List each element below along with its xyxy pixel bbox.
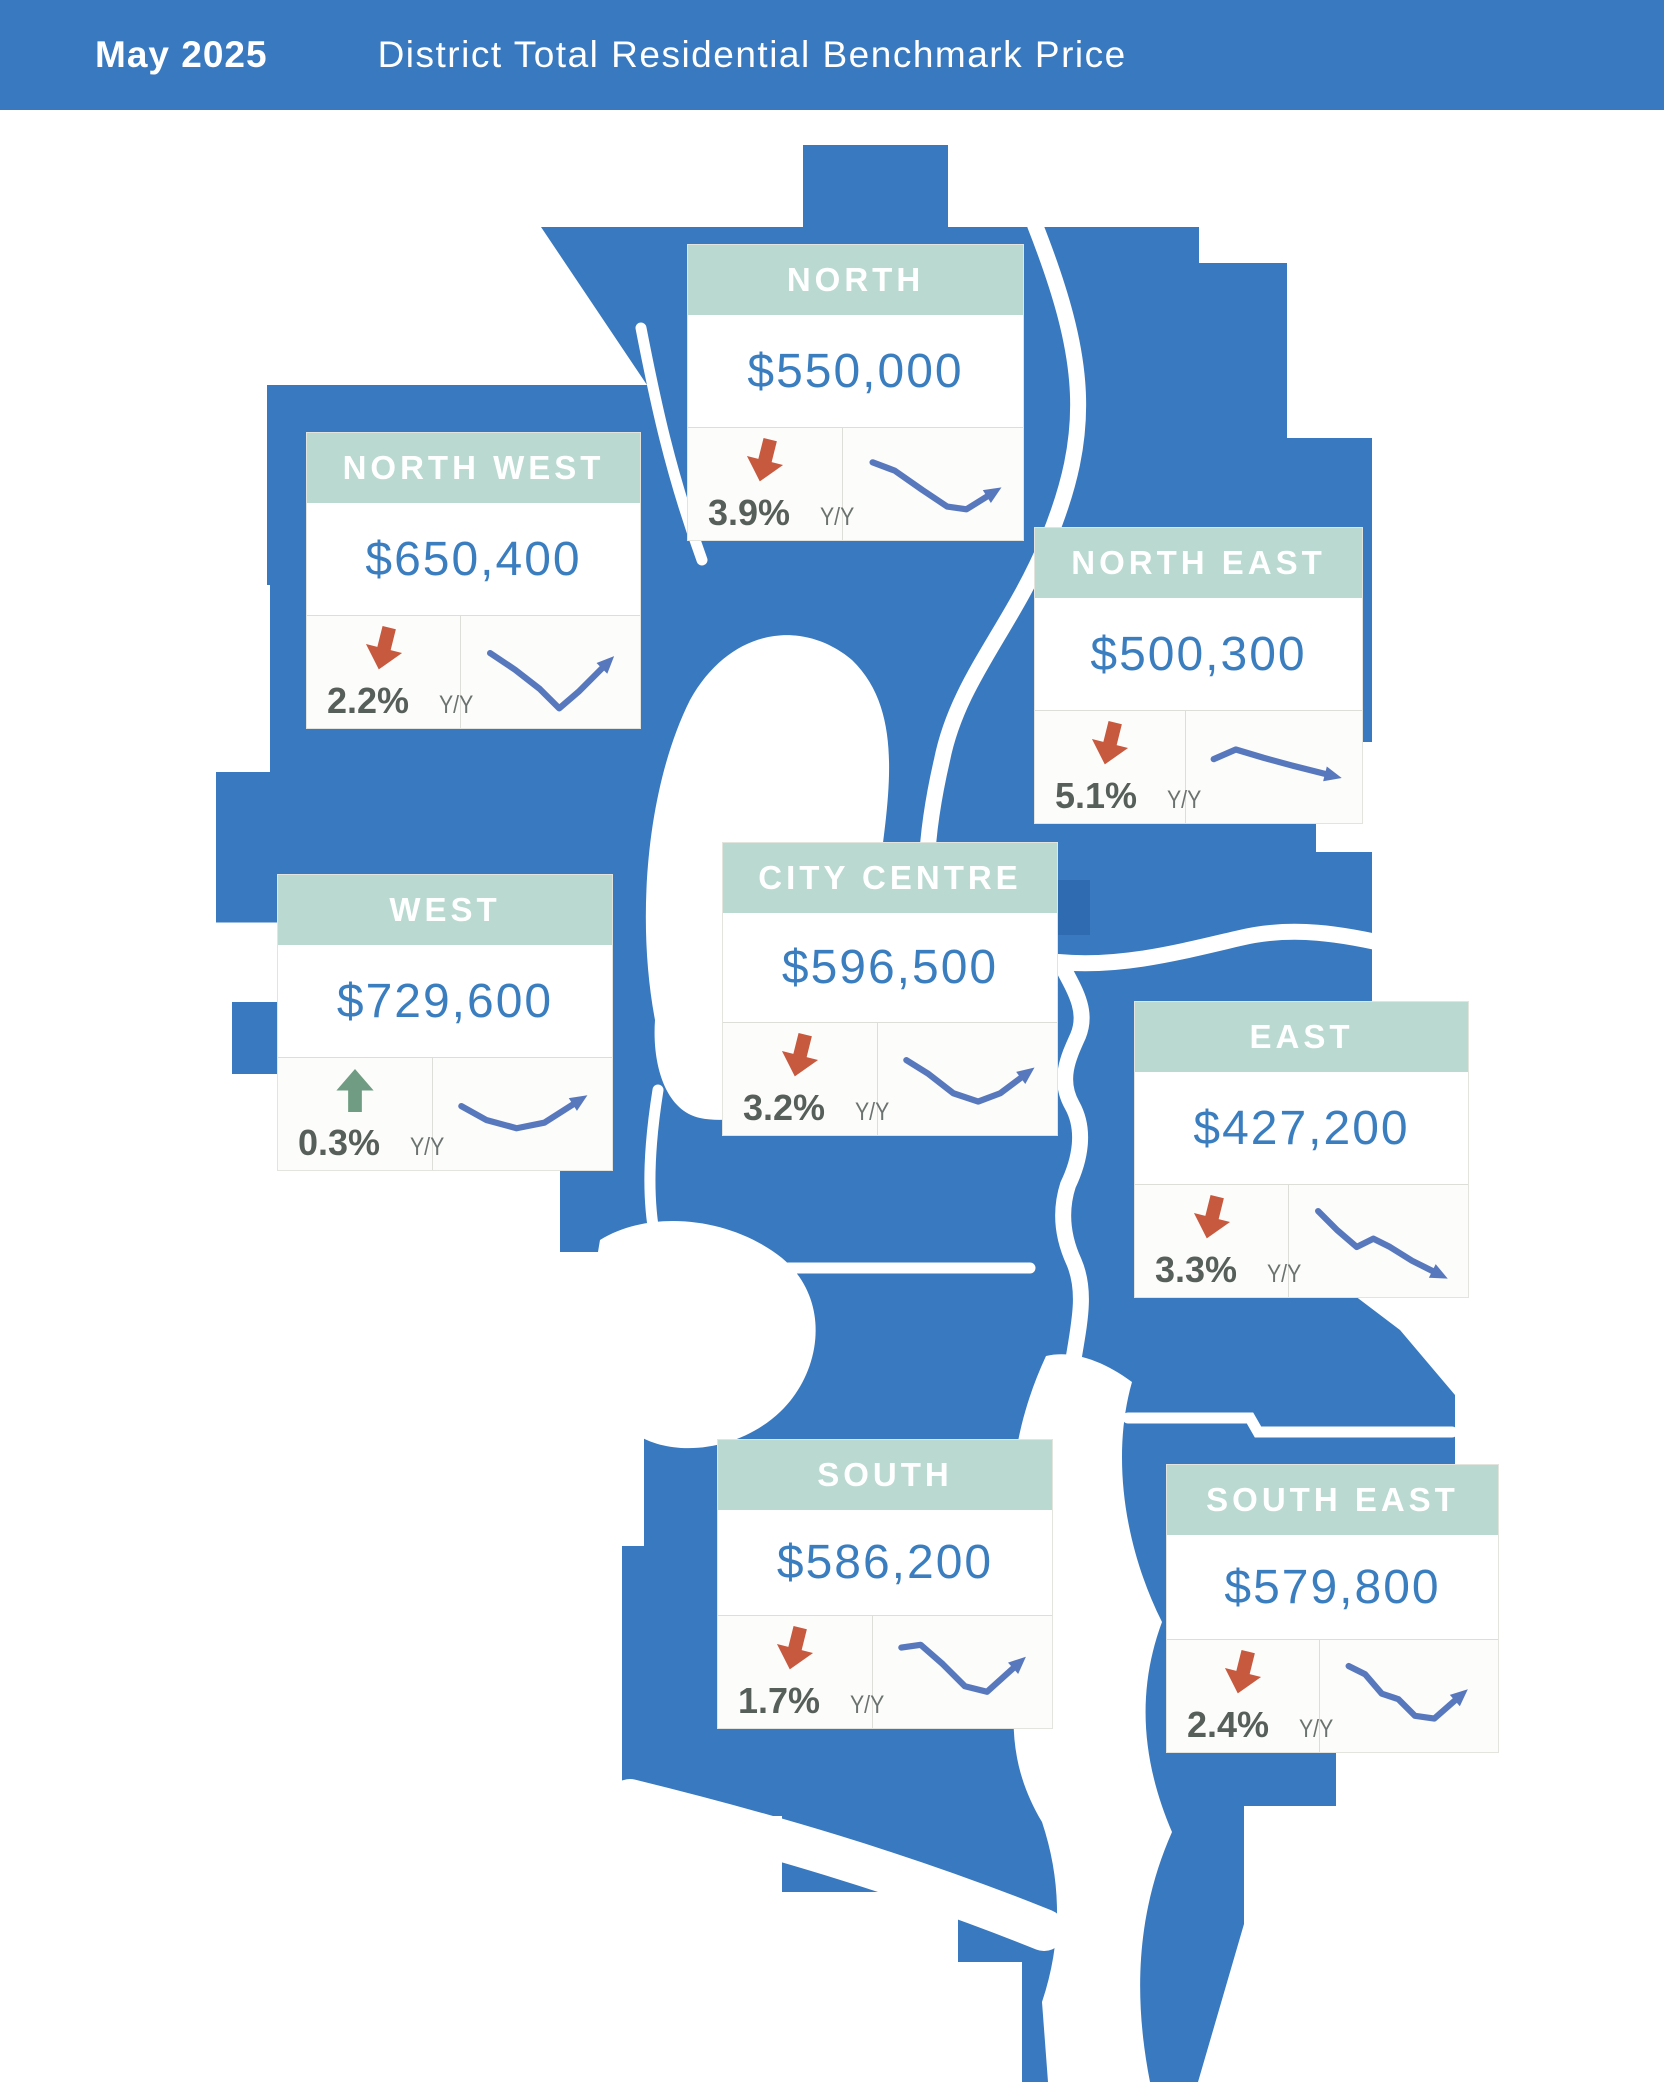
district-yoy-label: Y/Y (820, 503, 854, 532)
sparkline-path (462, 1103, 575, 1128)
district-yoy-label: Y/Y (1267, 1260, 1301, 1289)
district-change-percent: 3.9% (708, 492, 790, 534)
change-row: 3.3% Y/Y (1135, 1249, 1288, 1291)
trend-sparkline (474, 631, 628, 714)
district-yoy-label: Y/Y (1299, 1715, 1333, 1744)
district-price: $729,600 (278, 945, 612, 1058)
sparkline-path (907, 1060, 1023, 1101)
trend-arrow-icon (774, 1028, 826, 1084)
district-name: NORTH (787, 261, 924, 299)
trend-arrow-glyph (777, 1030, 824, 1081)
district-card-stats: 3.2% Y/Y (723, 1023, 1057, 1135)
district-price: $650,400 (307, 503, 640, 616)
trend-arrow-glyph (336, 1069, 373, 1112)
district-yoy-label: Y/Y (1167, 786, 1201, 815)
sparkline-path (490, 653, 603, 708)
district-change-cell: 2.2% Y/Y (307, 616, 461, 728)
district-card-north: NORTH $550,000 3.9% Y/Y (688, 245, 1023, 540)
district-card-header: NORTH EAST (1035, 528, 1362, 598)
sparkline-path (1348, 1666, 1456, 1718)
district-yoy-label: Y/Y (855, 1098, 889, 1127)
district-change-percent: 0.3% (298, 1122, 380, 1164)
change-row: 3.2% Y/Y (723, 1087, 877, 1129)
district-name: WEST (389, 891, 500, 929)
trend-sparkline (1199, 726, 1350, 809)
district-change-cell: 2.4% Y/Y (1167, 1640, 1320, 1752)
sparkline-path (1318, 1211, 1434, 1272)
district-change-percent: 3.3% (1155, 1249, 1237, 1291)
sparkline-path (872, 462, 988, 509)
district-name: NORTH EAST (1071, 544, 1326, 582)
district-price: $427,200 (1135, 1072, 1468, 1185)
trend-arrow-glyph (1087, 718, 1134, 769)
trend-arrow-icon (358, 621, 410, 677)
district-trend-cell (1186, 711, 1362, 823)
trend-sparkline (445, 1073, 599, 1156)
district-trend-cell (1320, 1640, 1498, 1752)
district-cards-layer: NORTH $550,000 3.9% Y/Y NORTH WE (0, 0, 1664, 2082)
district-card-header: EAST (1135, 1002, 1468, 1072)
district-price: $579,800 (1167, 1535, 1498, 1640)
district-price: $596,500 (723, 913, 1057, 1023)
district-card-header: NORTH WEST (307, 433, 640, 503)
trend-arrow-icon (1084, 716, 1136, 772)
district-change-percent: 5.1% (1055, 775, 1137, 817)
trend-arrow-glyph (772, 1623, 819, 1674)
sparkline-arrowhead (1323, 766, 1342, 781)
district-price: $550,000 (688, 315, 1023, 428)
district-price: $586,200 (718, 1510, 1052, 1616)
sparkline-path (1213, 749, 1326, 774)
trend-sparkline (885, 1631, 1039, 1714)
district-card-north-east: NORTH EAST $500,300 5.1% Y/Y (1035, 528, 1362, 823)
district-change-cell: 0.3% Y/Y (278, 1058, 433, 1170)
trend-arrow-glyph (1188, 1192, 1235, 1243)
change-row: 2.4% Y/Y (1167, 1704, 1319, 1746)
district-card-north-west: NORTH WEST $650,400 2.2% Y/Y (307, 433, 640, 728)
district-change-cell: 3.3% Y/Y (1135, 1185, 1289, 1297)
district-change-cell: 1.7% Y/Y (718, 1616, 873, 1728)
district-card-city-centre: CITY CENTRE $596,500 3.2% Y/Y (723, 843, 1057, 1135)
district-name: EAST (1249, 1018, 1353, 1056)
trend-arrow-icon (1217, 1645, 1269, 1701)
change-row: 0.3% Y/Y (278, 1122, 432, 1164)
district-card-south-east: SOUTH EAST $579,800 2.4% Y/Y (1167, 1465, 1498, 1752)
district-card-stats: 2.2% Y/Y (307, 616, 640, 728)
trend-arrow-glyph (1220, 1647, 1267, 1698)
district-card-header: NORTH (688, 245, 1023, 315)
district-card-header: SOUTH EAST (1167, 1465, 1498, 1535)
district-card-stats: 0.3% Y/Y (278, 1058, 612, 1170)
district-card-west: WEST $729,600 0.3% Y/Y (278, 875, 612, 1170)
district-name: SOUTH EAST (1206, 1481, 1459, 1519)
infographic-page: May 2025 District Total Residential Benc… (0, 0, 1664, 2082)
district-card-stats: 3.3% Y/Y (1135, 1185, 1468, 1297)
district-name: SOUTH (817, 1456, 953, 1494)
district-card-stats: 5.1% Y/Y (1035, 711, 1362, 823)
district-change-percent: 3.2% (743, 1087, 825, 1129)
trend-sparkline (1302, 1200, 1456, 1283)
district-card-east: EAST $427,200 3.3% Y/Y (1135, 1002, 1468, 1297)
district-card-stats: 3.9% Y/Y (688, 428, 1023, 540)
district-change-cell: 3.9% Y/Y (688, 428, 843, 540)
district-trend-cell (433, 1058, 612, 1170)
change-row: 1.7% Y/Y (718, 1680, 872, 1722)
trend-arrow-icon (769, 1621, 821, 1677)
district-card-south: SOUTH $586,200 1.7% Y/Y (718, 1440, 1052, 1728)
district-yoy-label: Y/Y (850, 1691, 884, 1720)
district-card-stats: 2.4% Y/Y (1167, 1640, 1498, 1752)
district-change-percent: 1.7% (738, 1680, 820, 1722)
trend-sparkline (856, 443, 1011, 526)
district-card-header: CITY CENTRE (723, 843, 1057, 913)
trend-sparkline (890, 1038, 1044, 1121)
district-name: CITY CENTRE (758, 859, 1021, 897)
district-change-cell: 3.2% Y/Y (723, 1023, 878, 1135)
sparkline-path (902, 1644, 1015, 1691)
district-change-percent: 2.4% (1187, 1704, 1269, 1746)
trend-arrow-glyph (742, 435, 789, 486)
district-card-header: SOUTH (718, 1440, 1052, 1510)
trend-arrow-icon (1186, 1190, 1238, 1246)
district-change-cell: 5.1% Y/Y (1035, 711, 1186, 823)
district-yoy-label: Y/Y (439, 691, 473, 720)
district-name: NORTH WEST (343, 449, 605, 487)
trend-arrow-icon (334, 1067, 376, 1114)
change-row: 5.1% Y/Y (1035, 775, 1185, 817)
trend-arrow-icon (739, 433, 791, 489)
trend-arrow-glyph (360, 623, 407, 674)
change-row: 2.2% Y/Y (307, 680, 460, 722)
trend-sparkline (1333, 1655, 1486, 1738)
district-card-header: WEST (278, 875, 612, 945)
change-row: 3.9% Y/Y (688, 492, 842, 534)
district-change-percent: 2.2% (327, 680, 409, 722)
district-price: $500,300 (1035, 598, 1362, 711)
district-trend-cell (461, 616, 640, 728)
district-trend-cell (878, 1023, 1057, 1135)
district-trend-cell (843, 428, 1023, 540)
district-yoy-label: Y/Y (410, 1133, 444, 1162)
district-card-stats: 1.7% Y/Y (718, 1616, 1052, 1728)
district-trend-cell (873, 1616, 1052, 1728)
district-trend-cell (1289, 1185, 1468, 1297)
